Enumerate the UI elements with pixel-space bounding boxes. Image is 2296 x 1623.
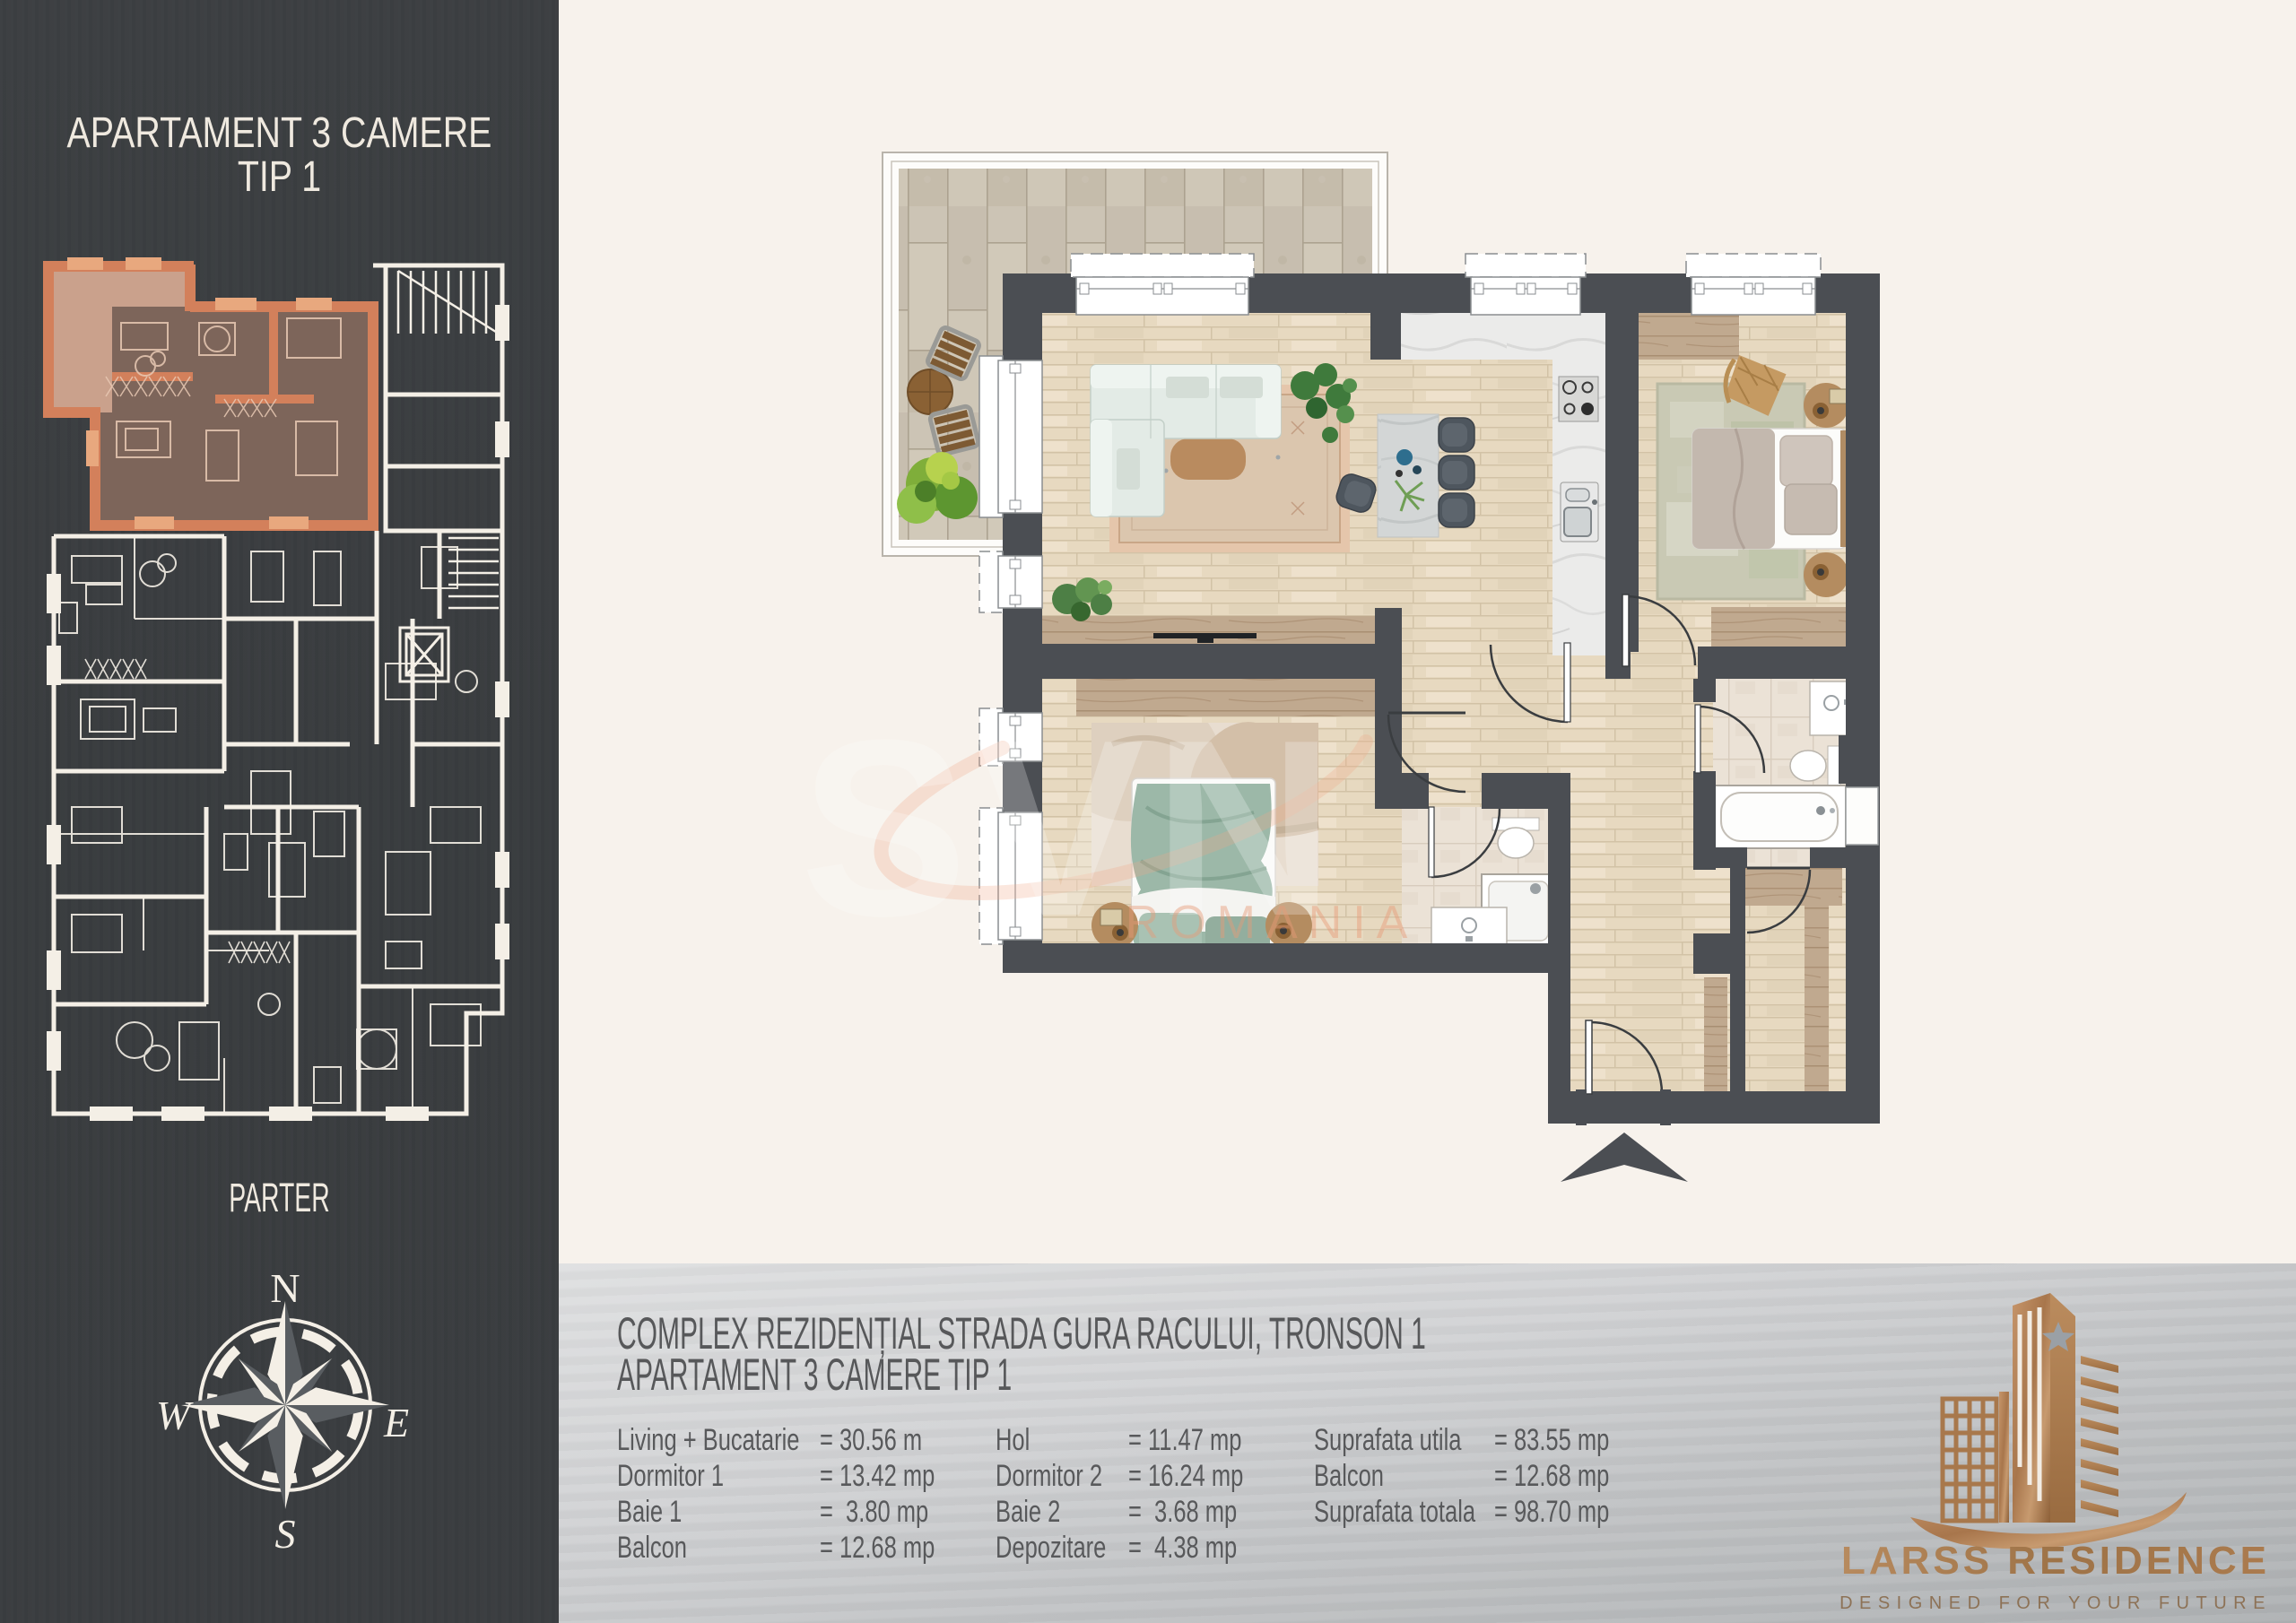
svg-text:ROMANIA: ROMANIA — [1126, 897, 1419, 949]
svg-text:S: S — [275, 1511, 296, 1557]
svg-text:LARSS RESIDENCE: LARSS RESIDENCE — [1841, 1539, 2270, 1583]
svg-text:W: W — [156, 1393, 194, 1438]
svg-text:N: N — [270, 1265, 300, 1311]
svg-text:E: E — [383, 1400, 409, 1445]
svg-text:DESIGNED FOR YOUR FUTURE: DESIGNED FOR YOUR FUTURE — [1839, 1593, 2272, 1613]
